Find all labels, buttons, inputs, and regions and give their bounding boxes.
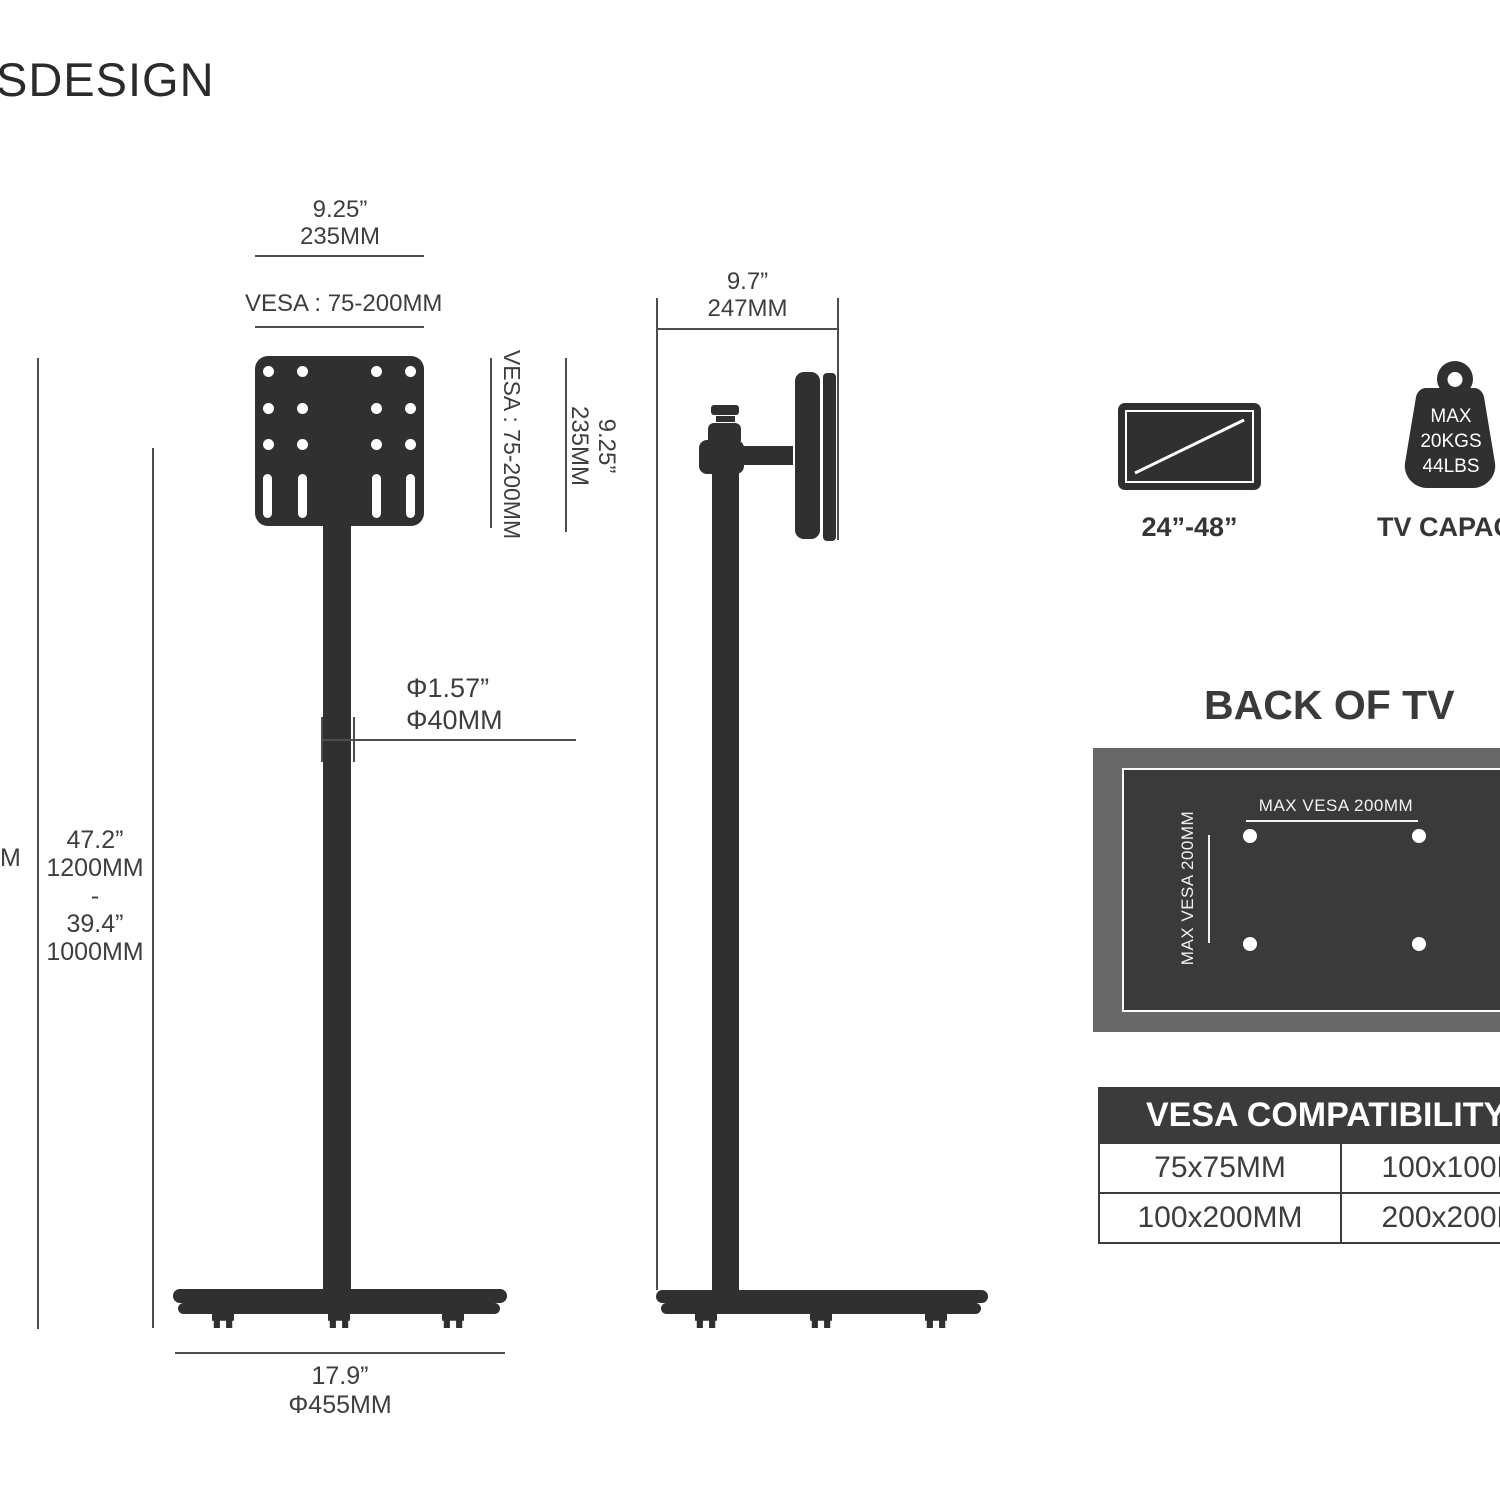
- height-min-inch: 39.4”: [45, 910, 145, 938]
- dim-line: [255, 255, 424, 257]
- height-separator: -: [45, 882, 145, 910]
- height-range-label: 47.2” 1200MM - 39.4” 1000MM: [45, 826, 145, 966]
- knob-cap: [711, 405, 739, 415]
- back-of-tv-panel: MAX VESA 200MM MAX VESA 200MM: [1093, 748, 1500, 1032]
- back-of-tv-face: MAX VESA 200MM MAX VESA 200MM: [1122, 768, 1500, 1012]
- front-base-top-bar: [173, 1289, 507, 1303]
- capacity-max: MAX: [1396, 404, 1500, 429]
- front-plate-height-inch: 9.25”: [593, 406, 620, 486]
- vesa-hole: [263, 439, 274, 450]
- max-vesa-vertical-label: MAX VESA 200MM: [1178, 811, 1198, 965]
- tv-size-label: 24”-48”: [1118, 512, 1261, 543]
- max-vesa-horizontal-line: [1246, 820, 1418, 822]
- caster-icon: [212, 1313, 234, 1328]
- front-base-bottom-bar: [178, 1303, 500, 1314]
- spec-sheet: SDESIGN 9.25” 235MM VESA : 75-200MM VESA…: [0, 0, 1500, 1500]
- tv-size-icon: [1118, 403, 1261, 490]
- leader-line: [322, 739, 576, 741]
- height-max-inch: 47.2”: [45, 826, 145, 854]
- vesa-hole: [405, 366, 416, 377]
- pole-diameter-mm: Φ40MM: [406, 704, 503, 736]
- vesa-hole: [297, 439, 308, 450]
- dim-line-total-height: [37, 358, 39, 1329]
- front-plate-height-mm: 235MM: [566, 406, 593, 486]
- tick-line: [321, 717, 323, 762]
- front-top-width-mm: 235MM: [255, 223, 425, 250]
- dim-line: [656, 298, 658, 1290]
- tick-line: [353, 717, 355, 762]
- vesa-hole: [263, 366, 274, 377]
- front-top-width-label: 9.25” 235MM: [255, 196, 425, 250]
- dim-line: [490, 358, 492, 528]
- pole-diameter-inch: Φ1.57”: [406, 672, 503, 704]
- pole-diameter-label: Φ1.57” Φ40MM: [406, 672, 503, 736]
- vesa-slot: [372, 474, 381, 518]
- tv-diagonal-line: [1127, 412, 1252, 481]
- base-width-inch: 17.9”: [255, 1362, 425, 1391]
- capacity-text: MAX 20KGS 44LBS: [1396, 404, 1500, 479]
- back-of-tv-title: BACK OF TV: [1204, 682, 1484, 729]
- tv-capacity-icon: MAX 20KGS 44LBS: [1396, 358, 1500, 504]
- height-max-mm: 1200MM: [45, 854, 145, 882]
- dim-line-adjustable-height: [152, 448, 154, 1328]
- clamp-neck: [708, 423, 741, 441]
- dim-line: [255, 326, 424, 328]
- capacity-kgs: 20KGS: [1396, 429, 1500, 454]
- vesa-table-cell: 75x75MM: [1100, 1144, 1340, 1192]
- front-vesa-range-label: VESA : 75-200MM: [245, 290, 435, 317]
- caster-icon: [810, 1313, 832, 1328]
- side-base-top-bar: [656, 1290, 988, 1303]
- tv-screen-frame: [1125, 410, 1254, 483]
- side-pole: [712, 473, 739, 1290]
- front-top-width-inch: 9.25”: [255, 196, 425, 223]
- panel-vesa-hole: [1243, 829, 1257, 843]
- panel-vesa-hole: [1412, 937, 1426, 951]
- caster-icon: [328, 1313, 350, 1328]
- vesa-hole: [371, 439, 382, 450]
- vesa-hole: [405, 439, 416, 450]
- vesa-table-title: VESA COMPATIBILITY: [1098, 1087, 1500, 1144]
- front-pole: [323, 524, 351, 1290]
- front-vesa-side-label: VESA : 75-200MM: [499, 349, 526, 538]
- vesa-table-cell: 200x200MM: [1342, 1194, 1500, 1242]
- capacity-lbs: 44LBS: [1396, 454, 1500, 479]
- vesa-hole: [405, 403, 416, 414]
- brand-logo: SDESIGN: [0, 52, 215, 107]
- vesa-slot: [298, 474, 307, 518]
- caster-icon: [925, 1313, 947, 1328]
- height-min-mm: 1000MM: [45, 938, 145, 966]
- vesa-table-cell: 100x200MM: [1100, 1194, 1340, 1242]
- vesa-table-cell: 100x100MM: [1342, 1144, 1500, 1192]
- vesa-plate: [255, 356, 424, 526]
- vesa-compatibility-table: VESA COMPATIBILITY 75x75MM 100x100MM 100…: [1098, 1087, 1500, 1244]
- vesa-hole: [263, 403, 274, 414]
- vesa-hole: [297, 366, 308, 377]
- tv-capacity-label: TV CAPACITY: [1377, 512, 1500, 543]
- side-plate-back: [795, 372, 820, 539]
- vesa-hole: [297, 403, 308, 414]
- panel-vesa-hole: [1243, 937, 1257, 951]
- base-width-label: 17.9” Φ455MM: [255, 1362, 425, 1420]
- vesa-hole: [371, 366, 382, 377]
- vesa-slot: [263, 474, 272, 518]
- max-vesa-vertical-line: [1208, 835, 1210, 943]
- vesa-table-body: 75x75MM 100x100MM 100x200MM 200x200MM: [1098, 1144, 1500, 1244]
- clamp-body: [699, 440, 744, 474]
- edge-cut-label: M: [0, 845, 21, 872]
- caster-icon: [695, 1313, 717, 1328]
- caster-icon: [442, 1313, 464, 1328]
- vesa-hole: [371, 403, 382, 414]
- panel-vesa-hole: [1412, 829, 1426, 843]
- side-depth-inch: 9.7”: [660, 268, 835, 295]
- side-plate-front: [823, 373, 836, 541]
- mount-arm: [743, 446, 793, 465]
- side-depth-label: 9.7” 247MM: [660, 268, 835, 322]
- dim-line: [837, 298, 839, 540]
- dim-line: [656, 328, 839, 330]
- side-depth-mm: 247MM: [660, 295, 835, 322]
- base-width-mm: Φ455MM: [255, 1391, 425, 1420]
- knob-stem: [716, 416, 735, 422]
- dim-line: [175, 1352, 505, 1354]
- vesa-slot: [406, 474, 415, 518]
- max-vesa-horizontal-label: MAX VESA 200MM: [1246, 796, 1426, 816]
- front-plate-height-label: 9.25” 235MM: [566, 406, 620, 486]
- side-base-bottom-bar: [661, 1303, 981, 1314]
